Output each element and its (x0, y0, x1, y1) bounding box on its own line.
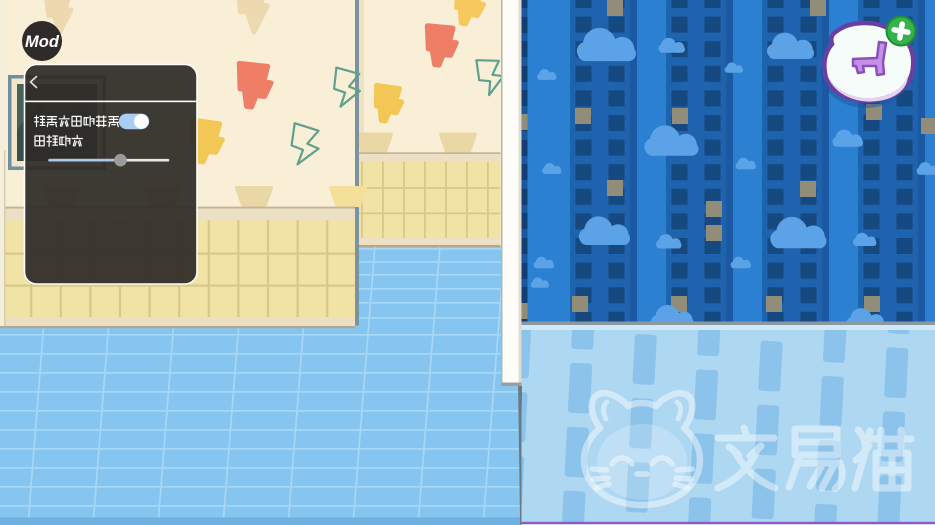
svg-text:Mod: Mod (25, 33, 60, 51)
